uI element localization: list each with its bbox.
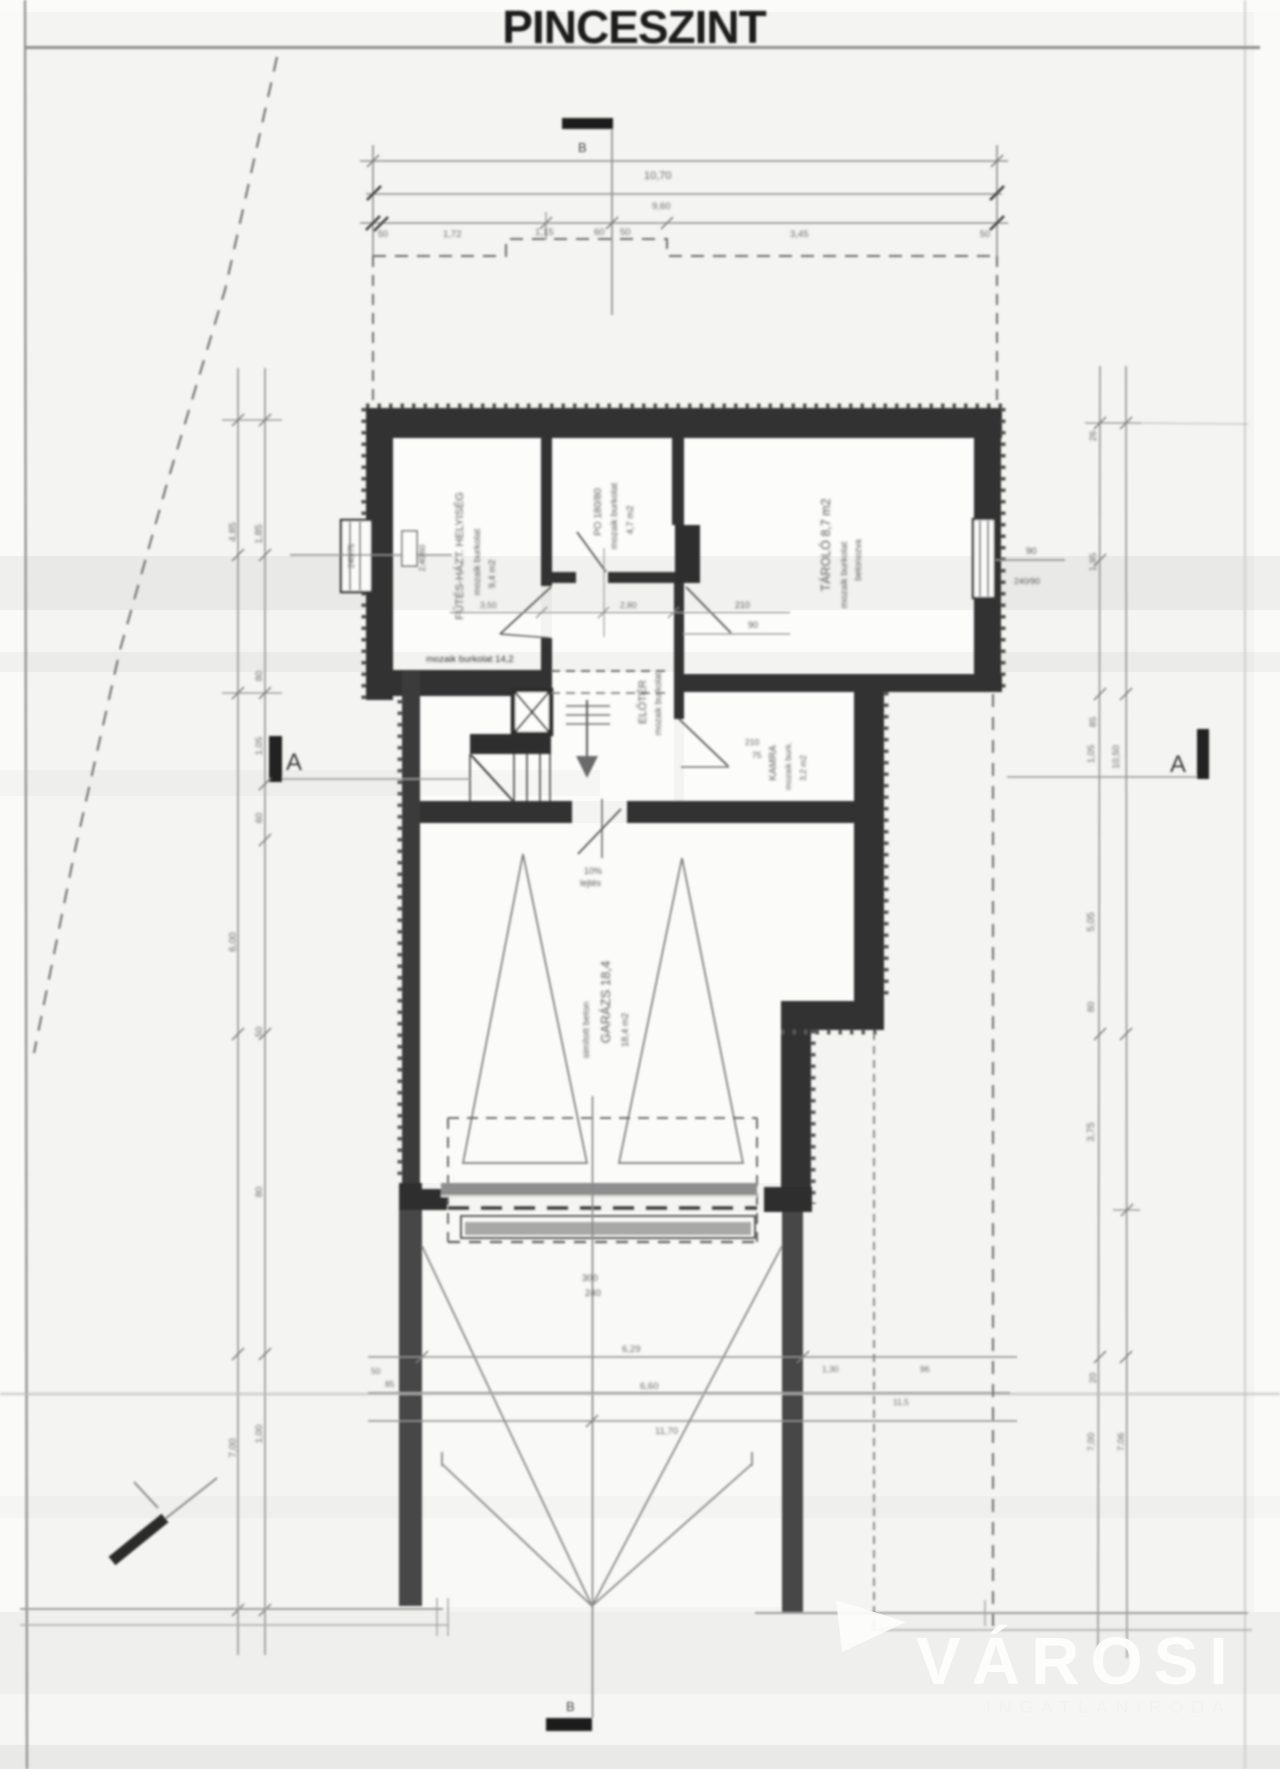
svg-text:3,50: 3,50 — [480, 600, 497, 610]
svg-text:mozaik burkolat: mozaik burkolat — [609, 482, 620, 549]
svg-text:90: 90 — [748, 620, 758, 630]
svg-text:KAMRA: KAMRA — [768, 745, 779, 781]
svg-text:3,45: 3,45 — [790, 229, 809, 240]
svg-text:300: 300 — [582, 1273, 598, 1284]
svg-text:PO 180/80: PO 180/80 — [593, 488, 604, 536]
svg-text:10,70: 10,70 — [644, 170, 672, 182]
svg-text:80: 80 — [254, 1187, 265, 1198]
svg-text:mozaik burkolat: mozaik burkolat — [472, 528, 483, 595]
svg-text:240: 240 — [585, 1288, 601, 1299]
svg-text:7,00: 7,00 — [1086, 1433, 1097, 1452]
svg-text:lejtés: lejtés — [580, 878, 602, 888]
svg-text:TÁROLÓ 8,7 m2: TÁROLÓ 8,7 m2 — [818, 498, 833, 591]
svg-text:240/90: 240/90 — [1014, 576, 1040, 586]
svg-text:simított beton: simított beton — [581, 1001, 592, 1058]
svg-text:1,30: 1,30 — [822, 1364, 839, 1374]
svg-text:3,2 m2: 3,2 m2 — [798, 755, 808, 781]
svg-text:1,95: 1,95 — [1088, 553, 1099, 572]
svg-text:1,85: 1,85 — [254, 524, 265, 544]
svg-text:10,50: 10,50 — [1111, 745, 1122, 769]
svg-text:B: B — [578, 140, 587, 155]
svg-text:mozaik burkolat: mozaik burkolat — [839, 541, 850, 608]
svg-text:mozaik burkolat 14,2: mozaik burkolat 14,2 — [426, 654, 514, 665]
svg-text:2,40/60: 2,40/60 — [418, 544, 427, 571]
svg-text:9,60: 9,60 — [652, 201, 671, 212]
svg-text:20: 20 — [1088, 1373, 1099, 1384]
svg-text:1,72: 1,72 — [443, 229, 462, 240]
svg-text:1,15: 1,15 — [535, 227, 554, 238]
svg-text:7,00: 7,00 — [228, 1438, 239, 1458]
svg-text:26: 26 — [1088, 431, 1099, 442]
svg-text:90: 90 — [1026, 546, 1037, 557]
svg-text:50: 50 — [980, 229, 990, 239]
svg-text:ELŐTÉR: ELŐTÉR — [635, 680, 649, 724]
svg-text:betonozva: betonozva — [853, 539, 863, 581]
svg-text:10%: 10% — [584, 866, 602, 876]
svg-text:5,05: 5,05 — [1086, 912, 1097, 932]
svg-text:6,60: 6,60 — [640, 1381, 659, 1392]
svg-text:B: B — [566, 1699, 575, 1714]
svg-text:11,70: 11,70 — [655, 1426, 678, 1437]
svg-text:18,4 m2: 18,4 m2 — [620, 1013, 631, 1047]
svg-text:80: 80 — [254, 671, 265, 682]
svg-text:6,00: 6,00 — [228, 932, 239, 952]
svg-text:60: 60 — [594, 227, 605, 238]
svg-text:6,29: 6,29 — [622, 1344, 641, 1355]
svg-text:210: 210 — [735, 600, 750, 610]
svg-text:75: 75 — [752, 750, 762, 760]
svg-text:1,05: 1,05 — [254, 737, 265, 756]
svg-text:4,7 m2: 4,7 m2 — [625, 505, 636, 534]
svg-text:4,85: 4,85 — [228, 522, 239, 542]
svg-text:50: 50 — [620, 227, 631, 238]
svg-text:2,80: 2,80 — [620, 600, 637, 610]
svg-text:9,4 m2: 9,4 m2 — [487, 559, 498, 588]
svg-text:11,5: 11,5 — [893, 1397, 909, 1407]
svg-text:96: 96 — [920, 1364, 930, 1374]
svg-text:210: 210 — [745, 737, 759, 747]
svg-text:50: 50 — [378, 229, 388, 239]
svg-text:1,00: 1,00 — [254, 1425, 265, 1444]
svg-text:60: 60 — [254, 813, 265, 824]
svg-text:A: A — [1170, 751, 1186, 778]
svg-text:85: 85 — [1088, 717, 1099, 728]
svg-text:INGATLANIRODA: INGATLANIRODA — [986, 1697, 1232, 1717]
svg-text:FŰTÉS-HÁZT. HELYISÉG: FŰTÉS-HÁZT. HELYISÉG — [452, 492, 466, 620]
svg-text:50: 50 — [254, 1027, 265, 1038]
svg-text:1,05: 1,05 — [1086, 745, 1097, 764]
svg-text:85: 85 — [385, 1379, 395, 1389]
svg-text:PINCESZINT: PINCESZINT — [502, 1, 766, 53]
svg-text:7,06: 7,06 — [1116, 1433, 1127, 1452]
svg-text:80: 80 — [1086, 1002, 1097, 1013]
svg-text:mozaik burkolat: mozaik burkolat — [653, 672, 663, 736]
svg-text:A: A — [286, 749, 302, 776]
svg-text:GARÁZS 18,4: GARÁZS 18,4 — [598, 961, 613, 1043]
svg-text:240/75: 240/75 — [347, 543, 356, 568]
svg-text:VÁROSI: VÁROSI — [916, 1624, 1239, 1699]
svg-text:mozaik burk.: mozaik burk. — [783, 742, 793, 790]
svg-text:3,75: 3,75 — [1086, 1122, 1097, 1142]
svg-text:50: 50 — [371, 1366, 381, 1376]
